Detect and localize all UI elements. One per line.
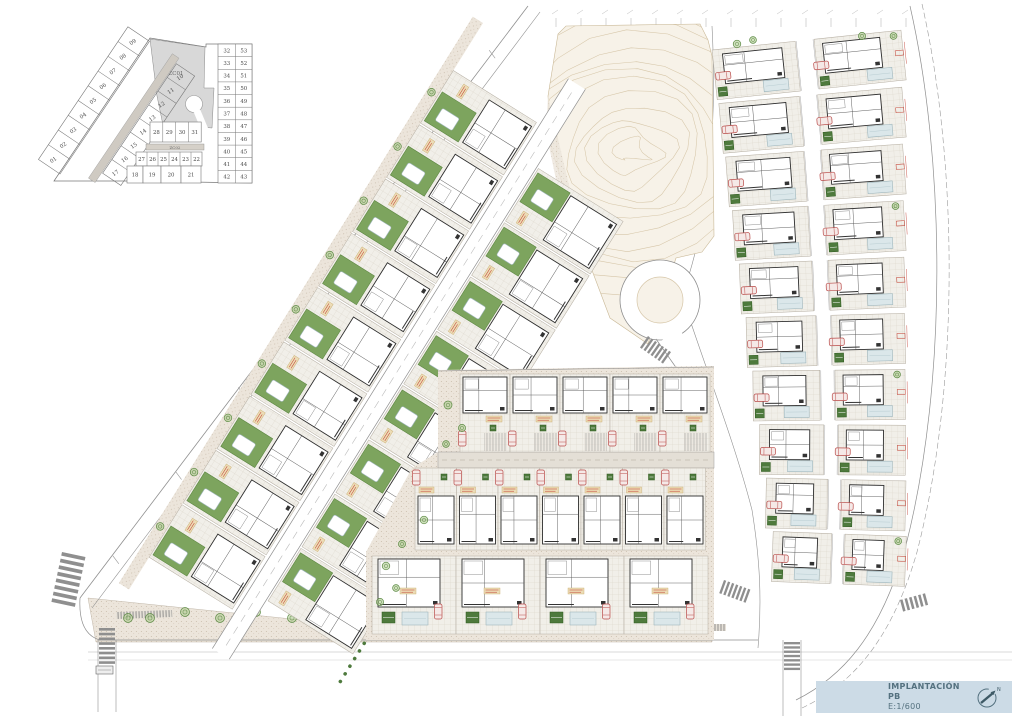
car-glyph — [813, 61, 829, 70]
townhouse-unit — [662, 468, 706, 550]
car-glyph — [662, 470, 670, 485]
house-row — [726, 144, 909, 207]
car-glyph — [519, 604, 527, 619]
house-unit — [829, 313, 906, 365]
tree — [458, 424, 465, 431]
car-glyph — [603, 604, 611, 619]
house-row — [719, 87, 908, 153]
car-glyph — [832, 393, 847, 401]
house-row — [759, 425, 907, 476]
plot-label — [585, 487, 600, 493]
car-glyph — [413, 470, 421, 485]
car-glyph — [579, 470, 587, 485]
keyplan-plot-number: 42 — [223, 175, 230, 181]
keyplan-plot-number: 03 — [69, 126, 79, 135]
keyplan-plot-number: 38 — [223, 124, 230, 130]
house-unit — [835, 425, 905, 475]
planter-box — [826, 187, 836, 197]
car-glyph — [829, 338, 844, 346]
north-arrow-icon: N — [974, 684, 1004, 710]
keyplan-plot-number: 43 — [240, 175, 247, 181]
house-row — [732, 201, 908, 261]
keyplan-plot-number: 28 — [153, 130, 160, 136]
keyplan-plot-number: 31 — [191, 130, 198, 136]
townhouse-unit — [459, 374, 511, 452]
house-unit — [719, 96, 804, 153]
townhouse-unit — [413, 468, 457, 550]
tree — [216, 614, 225, 623]
planter-box — [767, 516, 776, 525]
house-unit — [726, 151, 808, 207]
townhouse-unit — [579, 468, 623, 550]
keyplan-plot-number: 19 — [149, 173, 156, 179]
house-row — [739, 257, 908, 314]
key-plan: ZC01010203040506070809171615141312111028… — [38, 27, 252, 196]
planter-box — [820, 76, 830, 86]
keyplan-plot-number: 07 — [109, 67, 119, 76]
tree — [382, 562, 390, 570]
keyplan-plot-number: 01 — [49, 156, 58, 165]
planter-box — [540, 425, 546, 431]
house-row — [765, 478, 908, 531]
keyplan-plot-number: 44 — [240, 162, 247, 168]
keyplan-plot-number: 49 — [240, 99, 247, 105]
planter-box — [490, 425, 496, 431]
car-glyph — [435, 604, 443, 619]
plan-title: IMPLANTACIÓN PB — [888, 682, 974, 702]
keyplan-plot-number: 36 — [223, 99, 230, 105]
planter-box — [724, 140, 734, 150]
crosswalk — [51, 552, 85, 607]
keyplan-plot-number: 46 — [240, 137, 247, 143]
townhouse-unit — [496, 468, 540, 550]
house-unit — [732, 206, 810, 260]
plot-label — [586, 416, 602, 422]
car-glyph — [820, 172, 836, 181]
crosswalk — [900, 593, 928, 611]
planter-box — [690, 474, 696, 480]
north-letter: N — [997, 687, 1001, 693]
zone-label: ZC02 — [170, 145, 181, 150]
tree — [444, 401, 452, 409]
keyplan-plot-number: 09 — [129, 38, 139, 47]
crosswalk — [719, 580, 750, 603]
planter-box — [835, 353, 844, 362]
car-glyph — [715, 71, 731, 80]
tree — [750, 37, 757, 44]
master-plan-drawing: ZC01010203040506070809171615141312111028… — [0, 0, 1024, 724]
tree — [733, 40, 741, 48]
planter-box — [843, 518, 852, 527]
tree — [393, 585, 400, 592]
planter-box — [566, 474, 572, 480]
car-glyph — [496, 470, 504, 485]
townhouse-unit — [609, 374, 661, 452]
keyplan-plot-number: 04 — [79, 112, 89, 121]
house-unit — [771, 532, 831, 584]
planter-box — [823, 132, 833, 142]
plot-label — [486, 416, 502, 422]
planter-box — [840, 463, 849, 472]
keyplan-plot-number: 22 — [193, 157, 200, 163]
tree — [420, 516, 428, 524]
keyplan-plot-number: 48 — [240, 112, 247, 118]
keyplan-plot-number: 50 — [240, 86, 247, 92]
house-unit — [765, 478, 827, 529]
car-glyph — [748, 340, 763, 348]
car-glyph — [767, 501, 782, 509]
car-glyph — [773, 555, 788, 563]
plot-label — [652, 588, 668, 594]
keyplan-plot-number: 37 — [223, 112, 230, 118]
tree — [858, 32, 865, 39]
car-glyph — [841, 557, 856, 565]
plot-label — [568, 588, 584, 594]
plot-label — [668, 487, 683, 493]
keyplan-plot-number: 02 — [59, 141, 68, 150]
car-glyph — [537, 470, 545, 485]
planter-box — [829, 242, 839, 252]
keyplan-plot-number: 21 — [188, 173, 195, 179]
townhouse-unit — [509, 374, 561, 452]
townhouse-unit — [659, 374, 711, 452]
keyplan-plot-number: 45 — [240, 149, 247, 155]
car-glyph — [620, 470, 628, 485]
house-unit — [825, 257, 906, 310]
keyplan-plot-number: 52 — [240, 61, 247, 67]
house-unit — [753, 370, 820, 421]
tree — [895, 538, 902, 545]
plot-label — [636, 416, 652, 422]
planter-box — [690, 425, 696, 431]
tree — [443, 441, 450, 448]
tree — [398, 540, 405, 547]
house-unit — [712, 41, 800, 99]
car-glyph — [741, 286, 756, 294]
townhouse-unit — [454, 468, 498, 550]
plot-label — [627, 487, 642, 493]
planter-box — [441, 474, 447, 480]
planter-box — [634, 612, 647, 623]
car-glyph — [609, 431, 617, 446]
car-glyph — [835, 448, 850, 456]
tree — [894, 371, 901, 378]
planter-box — [640, 425, 646, 431]
car-glyph — [687, 604, 695, 619]
keyplan-plot-number: 35 — [223, 86, 230, 92]
keyplan-plot-number: 29 — [166, 130, 173, 136]
car-glyph — [826, 283, 841, 291]
title-block: IMPLANTACIÓN PB E:1/600 N — [816, 681, 1012, 713]
car-glyph — [817, 117, 833, 126]
tree — [890, 32, 897, 39]
keyplan-plot-number: 08 — [119, 53, 129, 62]
car-glyph — [838, 503, 853, 511]
site-plan-page: ZC01010203040506070809171615141312111028… — [0, 0, 1024, 724]
keyplan-plot-number: 53 — [240, 48, 247, 54]
keyplan-plot-number: 41 — [223, 162, 230, 168]
planter-box — [466, 612, 479, 623]
car-glyph — [454, 470, 462, 485]
keyplan-plot-number: 26 — [149, 157, 156, 163]
house-unit — [815, 87, 907, 145]
house-unit — [818, 144, 906, 200]
house-unit — [739, 261, 814, 314]
car-glyph — [559, 431, 567, 446]
tree — [124, 614, 133, 623]
keyplan-plot-number: 25 — [160, 157, 167, 163]
planter-box — [607, 474, 613, 480]
keyplan-plot-number: 33 — [223, 61, 230, 67]
plot-label — [544, 487, 559, 493]
plan-scale: E:1/600 — [888, 702, 974, 712]
planter-box — [749, 355, 758, 364]
planter-box — [837, 408, 846, 417]
planter-box — [524, 474, 530, 480]
townhouse-unit — [559, 374, 611, 452]
planter-box — [730, 194, 740, 204]
plot-label — [419, 487, 434, 493]
car-glyph — [509, 431, 517, 446]
house-unit — [838, 480, 906, 531]
car-glyph — [735, 233, 750, 241]
plot-label — [400, 588, 416, 594]
car-glyph — [728, 179, 744, 188]
car-glyph — [459, 431, 467, 446]
tree — [181, 608, 190, 617]
planter-box — [550, 612, 563, 623]
north-needle — [981, 693, 993, 703]
title-block-text: IMPLANTACIÓN PB E:1/600 — [888, 682, 974, 712]
keyplan-plot-number: 47 — [240, 124, 247, 130]
keyplan-plot-number: 32 — [223, 48, 230, 54]
planter-box — [832, 298, 841, 307]
house-row — [771, 532, 908, 587]
keyplan-plot-number: 24 — [171, 157, 178, 163]
house-row — [746, 313, 908, 367]
keyplan-plot-number: 30 — [179, 130, 186, 136]
car-glyph — [722, 125, 738, 134]
planter-box — [761, 463, 770, 472]
townhouse-unit — [537, 468, 581, 550]
keyplan-plot-number: 27 — [138, 157, 145, 163]
keyplan-plot-number: 18 — [132, 173, 139, 179]
plot-label — [461, 487, 476, 493]
car-glyph — [754, 394, 769, 402]
planter-box — [483, 474, 489, 480]
keyplan-plot-number: 05 — [89, 97, 99, 106]
crosswalk — [784, 642, 800, 670]
planter-box — [382, 612, 395, 623]
keyplan-plot-number: 23 — [182, 157, 189, 163]
planter-box — [773, 570, 782, 579]
planter-box — [743, 302, 752, 311]
planter-box — [590, 425, 596, 431]
house-unit — [759, 425, 823, 475]
planter-box — [845, 572, 854, 581]
crosswalk — [99, 628, 115, 664]
car-glyph — [823, 227, 838, 235]
plot-label — [502, 487, 517, 493]
planter-box — [649, 474, 655, 480]
house-unit — [746, 316, 817, 368]
plot-label — [536, 416, 552, 422]
townhouse-unit — [620, 468, 664, 550]
planter-box — [737, 248, 747, 258]
townhouse-unit — [624, 556, 708, 634]
keyplan-plot-number: 40 — [223, 149, 230, 155]
car-glyph — [760, 448, 775, 456]
right-residential-zone — [712, 30, 908, 586]
tree — [892, 203, 899, 210]
tree — [376, 598, 383, 605]
townhouse-unit — [456, 556, 540, 634]
keyplan-plot-number: 34 — [223, 74, 230, 80]
keyplan-plot-number: 20 — [168, 173, 175, 179]
tree — [146, 614, 155, 623]
townhouse-unit — [540, 556, 624, 634]
keyplan-plot-number: 06 — [99, 82, 109, 91]
keyplan-plot-number: 51 — [240, 74, 247, 80]
keyplan-plot-number: 39 — [223, 137, 230, 143]
planter-box — [718, 87, 728, 97]
plot-label — [484, 588, 500, 594]
plot-label — [686, 416, 702, 422]
car-glyph — [659, 431, 667, 446]
house-row — [753, 369, 908, 421]
planter-box — [755, 409, 764, 418]
